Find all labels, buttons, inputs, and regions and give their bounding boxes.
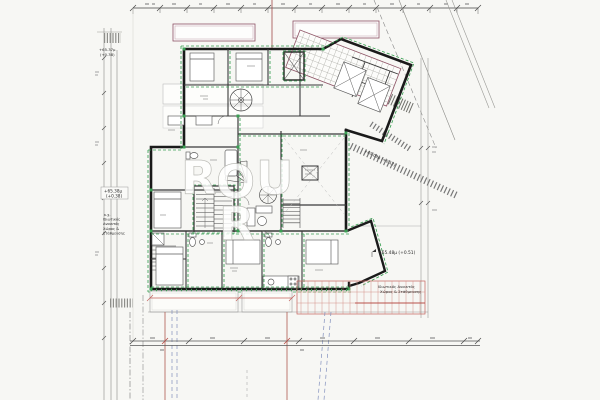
terrace-table <box>196 116 212 125</box>
toilet <box>266 238 272 247</box>
parking-label-right-line2: Χώρος & Στάθμευσης <box>380 289 421 294</box>
boundary-lines-right <box>421 58 428 318</box>
parking-label-left-line: Χώρος & <box>103 227 119 231</box>
boundary-micro-text-right <box>432 147 437 210</box>
parking-label-left-line: Ιδιωτικός <box>103 218 120 222</box>
dimension-numbers-bottom <box>150 338 472 350</box>
sink <box>200 240 205 245</box>
page: { "document": { "type": "architectural-f… <box>0 0 600 400</box>
parking-label-left-line: Ανοικτός <box>103 222 119 226</box>
terrace-table <box>168 116 184 125</box>
sidewalk-label-group: +65.09μ (+0.12) <box>364 148 397 167</box>
floor-plan-drawing: R O U R +65.37μ (+0.38) +65.38μ (+0.38) … <box>0 0 600 400</box>
watermark: R O U R <box>181 151 293 251</box>
diagonal-boundary-2 <box>446 0 495 108</box>
coffee-table <box>258 217 267 226</box>
balcony-bottom-2 <box>242 291 292 312</box>
sink <box>276 240 281 245</box>
parking-label-left-line: κ.χ. <box>104 213 110 217</box>
plot-boundary-right <box>351 0 495 318</box>
toilet <box>190 238 196 247</box>
level-marker-icon <box>372 249 376 252</box>
stair-spiral-top-radials <box>230 89 252 111</box>
level-label-topleft-line2: (+0.38) <box>100 52 115 57</box>
dimension-extensions-top <box>133 8 478 14</box>
level-label-right: +65.48μ (+0.51) <box>378 250 416 256</box>
burner <box>294 278 296 280</box>
sidewalk-hatch-strip-upper <box>371 124 410 149</box>
balcony-bottom-1 <box>150 291 238 312</box>
diagonal-boundary-1 <box>399 0 455 140</box>
bed <box>236 53 262 81</box>
kitchen-sink <box>268 279 274 285</box>
blue-guides-right <box>318 312 331 400</box>
bed <box>154 192 181 228</box>
burner <box>290 278 292 280</box>
sofa <box>256 206 272 213</box>
bed <box>190 53 214 81</box>
red-guides-bottom <box>165 312 287 400</box>
balcony-top-1 <box>173 24 255 41</box>
dimension-lines-bottom <box>130 341 480 346</box>
watermark-letter: R <box>219 197 254 251</box>
blue-guides-left <box>172 310 177 400</box>
level-label-left-line2: (+0.38) <box>106 194 122 199</box>
bed <box>306 240 338 264</box>
bed <box>156 247 183 285</box>
sidewalk-level-label: +65.09μ (+0.12) <box>364 148 397 167</box>
plot-boundary-left <box>95 28 133 400</box>
stove <box>288 276 298 288</box>
burner <box>294 283 296 285</box>
upper-balconies <box>173 21 379 41</box>
watermark-letter: U <box>256 151 293 205</box>
boundary-micro-text <box>95 72 99 255</box>
dimension-chain-bottom <box>130 338 481 350</box>
floor-plan-canvas: R O U R +65.37μ (+0.38) +65.38μ (+0.38) … <box>0 0 600 400</box>
watermark-letter: R <box>181 151 216 205</box>
burner <box>290 283 292 285</box>
parking-label-left-line: Στάθμευσης <box>103 231 125 235</box>
boundary-ticks-right <box>419 146 430 205</box>
